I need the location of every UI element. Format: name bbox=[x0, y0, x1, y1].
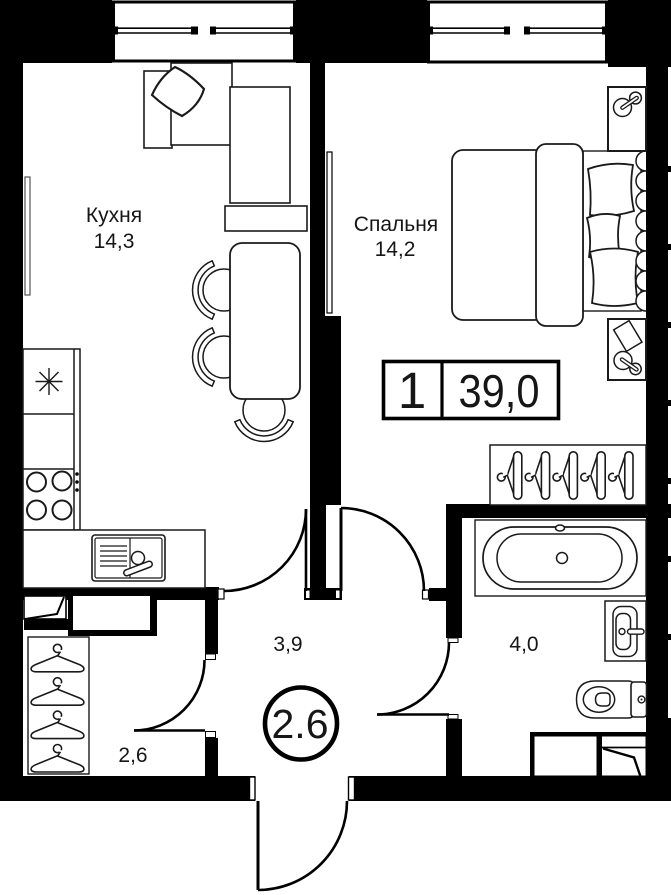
svg-text:14,3: 14,3 bbox=[94, 230, 135, 253]
svg-text:3,9: 3,9 bbox=[273, 633, 302, 656]
svg-text:Кухня: Кухня bbox=[86, 204, 142, 227]
svg-text:2.6: 2.6 bbox=[272, 701, 329, 747]
svg-text:4,0: 4,0 bbox=[509, 633, 538, 656]
svg-text:39,0: 39,0 bbox=[459, 365, 540, 417]
svg-text:Спальня: Спальня bbox=[354, 213, 438, 236]
svg-text:14,2: 14,2 bbox=[375, 238, 416, 261]
svg-text:1: 1 bbox=[398, 362, 426, 419]
svg-text:2,6: 2,6 bbox=[118, 744, 147, 767]
